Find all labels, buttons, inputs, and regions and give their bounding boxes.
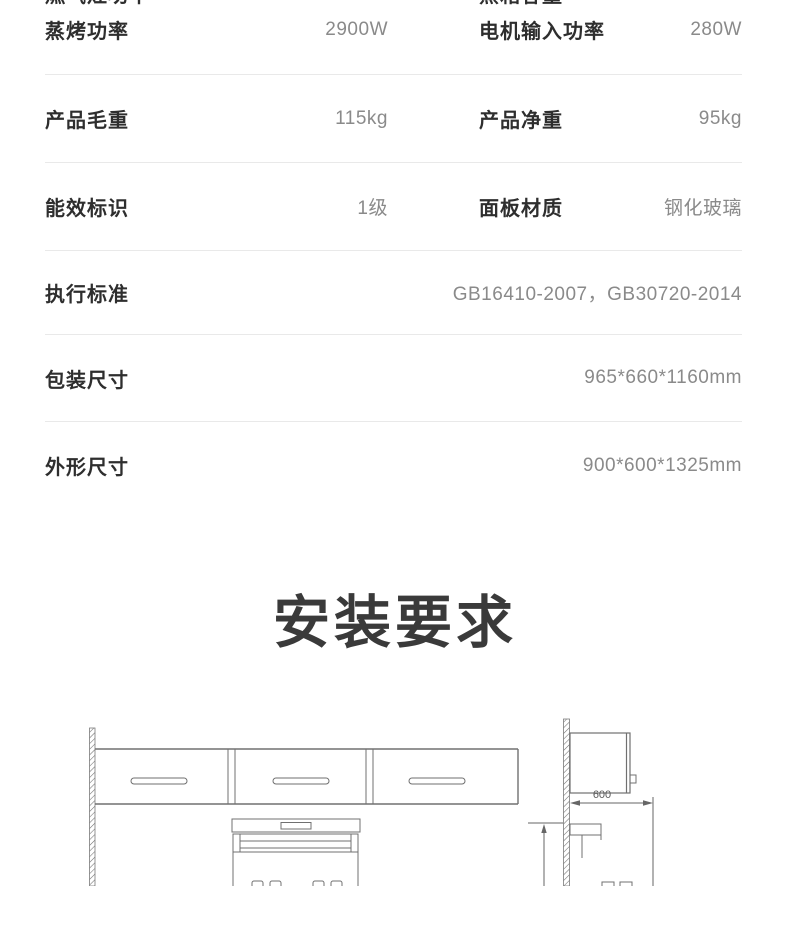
spec-row-package-size: 包装尺寸 965*660*1160mm	[45, 335, 742, 422]
spec-label: 面板材质	[479, 192, 629, 221]
control-panel	[281, 823, 311, 830]
stove-knobs	[252, 881, 342, 886]
spec-label: 蒸箱容量	[479, 0, 629, 8]
spec-label: 产品毛重	[45, 104, 245, 133]
spec-value: 900*600*1325mm	[245, 455, 742, 477]
spec-value: 280W	[629, 19, 742, 41]
installation-diagram: 600	[0, 714, 790, 886]
spec-value: 115kg	[245, 108, 388, 130]
spec-row-energy-rating: 能效标识 1级 面板材质 钢化玻璃	[45, 163, 742, 251]
spec-label: 外形尺寸	[45, 451, 245, 480]
spec-label: 燃气灶功率	[45, 0, 245, 8]
spec-value: 965*660*1160mm	[245, 367, 742, 389]
spec-value: 95kg	[629, 108, 742, 130]
stove-front	[232, 819, 360, 886]
spec-value: 1级	[245, 193, 388, 220]
front-view	[90, 728, 519, 886]
height-dimension	[528, 823, 563, 886]
spec-label: 产品净重	[479, 104, 629, 133]
spec-row-gross-weight: 产品毛重 115kg 产品净重 95kg	[45, 75, 742, 163]
wall-hatch	[90, 728, 96, 886]
spec-value: 4.5kW	[245, 0, 388, 5]
dimension-label: 600	[593, 789, 611, 801]
spec-label: 包装尺寸	[45, 364, 245, 393]
spec-value: 钢化玻璃	[629, 193, 742, 220]
wall-hatch-side	[564, 719, 570, 886]
stove-side	[570, 824, 632, 886]
installation-requirements-title: 安装要求	[0, 591, 790, 655]
spec-label: 蒸烤功率	[45, 15, 245, 44]
cabinet-side-handle	[630, 775, 636, 783]
spec-row-standards: 执行标准 GB16410-2007，GB30720-2014	[45, 251, 742, 335]
cabinet-handles	[131, 778, 465, 784]
upper-cabinets	[95, 749, 518, 804]
spec-value: GB16410-2007，GB30720-2014	[245, 279, 742, 306]
cabinet-side	[570, 733, 636, 793]
spec-value: 2900W	[245, 19, 388, 41]
spec-label: 执行标准	[45, 278, 245, 307]
spec-row-steam-bake-power: 蒸烤功率 2900W 电机输入功率 280W	[45, 0, 742, 75]
spec-row-product-size: 外形尺寸 900*600*1325mm	[45, 422, 742, 509]
side-view: 600	[528, 719, 653, 886]
spec-label: 能效标识	[45, 192, 245, 221]
spec-table: 燃气灶功率 4.5kW 蒸箱容量 60L 蒸烤功率 2900W 电机输入功率 2…	[0, 0, 790, 509]
spec-label: 电机输入功率	[479, 15, 629, 44]
spec-value: 60L	[629, 0, 742, 5]
